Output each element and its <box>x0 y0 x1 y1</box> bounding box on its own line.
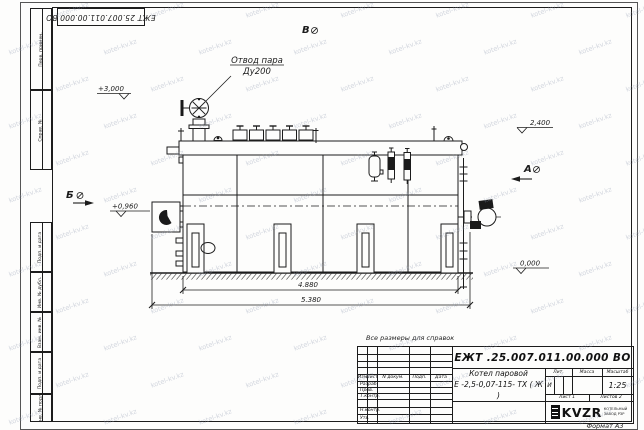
tb-col-data: Дата <box>430 374 452 381</box>
dimension-label-outer: 5.380 <box>301 296 322 304</box>
boiler-body <box>150 98 501 289</box>
elevation-label-ground: 0,000 <box>520 260 541 268</box>
kvzr-logo-text: KVZR <box>562 405 602 420</box>
tb-organization: KVZR КОТЕЛЬНЫЙ ЗАВОД РЗР <box>545 401 633 423</box>
tb-product-line1: Котел паровой <box>469 368 528 379</box>
tb-product-line2: Е -2,5-0,07-115- ТХ ( Ж ) <box>452 379 545 402</box>
elevation-label-right: 2,400 <box>530 119 551 127</box>
section-label-a: А <box>523 164 532 175</box>
tb-doc-number: ЕЖТ .25.007.011.00.000 ВО <box>452 347 633 368</box>
view-label-v: В <box>302 25 310 36</box>
feed-pump <box>458 199 501 229</box>
kvzr-logo-subtext: КОТЕЛЬНЫЙ ЗАВОД РЗР <box>604 407 628 416</box>
reference-note: Все размеры для справок <box>366 334 454 342</box>
title-block: Изм Лист N докум. Подп. Дата Разраб. Про… <box>357 346 634 424</box>
section-marks: Б В А <box>66 25 540 206</box>
dimension-label-inner: 4.880 <box>298 281 319 289</box>
tb-scale-value: 1:25 <box>602 376 633 394</box>
tb-row-nkontr: Н.контр. <box>358 407 400 414</box>
kvzr-logo: KVZR КОТЕЛЬНЫЙ ЗАВОД РЗР <box>551 405 628 420</box>
tb-col-podp: Подп. <box>409 374 430 381</box>
tb-col-dokum: N докум. <box>377 374 409 381</box>
tb-lit-value: И <box>545 376 554 394</box>
tb-product-name: Котел паровой Е -2,5-0,07-115- ТХ ( Ж ) <box>452 368 545 401</box>
tb-sheet-number: Лист 1 <box>545 394 589 401</box>
band-fittings <box>314 126 468 151</box>
elevation-label-top: +3,000 <box>98 85 124 93</box>
tb-masshtab-header: Масштаб <box>602 368 633 376</box>
tb-massa-header: Масса <box>572 368 602 376</box>
tb-row-utv: Утв. <box>358 414 400 422</box>
kvzr-logo-sub2: ЗАВОД РЗР <box>604 412 628 417</box>
tb-sheets-total: Листов 2 <box>589 394 633 401</box>
steam-valve <box>181 98 223 141</box>
drawing-sheet: ЕЖТ 25.007.011.00.000 ВО Перв. примен. С… <box>0 0 644 430</box>
callout-line2: Ду200 <box>242 67 271 77</box>
steam-outlet-callout: Отвод пара Ду200 <box>206 56 284 101</box>
kvzr-logo-mark <box>551 405 560 419</box>
level-instruments <box>369 148 411 184</box>
burner <box>152 202 183 232</box>
elevation-label-burner: +0,960 <box>112 203 138 211</box>
tb-lit-header: Лит. <box>545 368 572 376</box>
section-label-b: Б <box>66 190 74 201</box>
callout-line1: Отвод пара <box>231 56 283 66</box>
safety-valves <box>233 126 313 142</box>
tb-col-list: Лист <box>367 374 377 381</box>
tb-row-tkontr: Т.контр. <box>358 393 400 399</box>
elevation-marks <box>97 94 553 274</box>
